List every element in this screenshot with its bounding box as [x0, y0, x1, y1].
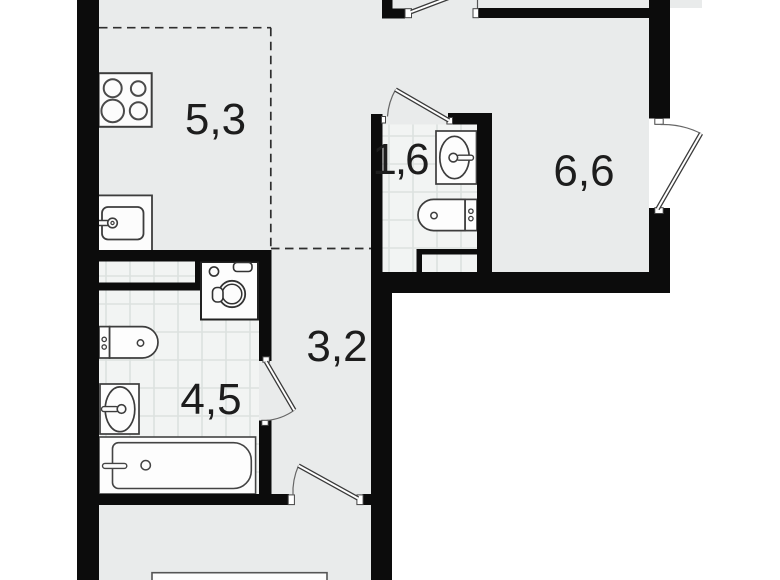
svg-text:1,6: 1,6	[372, 135, 428, 184]
svg-text:3,2: 3,2	[306, 322, 367, 371]
svg-text:6,6: 6,6	[553, 147, 614, 196]
svg-text:5,3: 5,3	[185, 95, 246, 144]
svg-text:4,5: 4,5	[180, 375, 241, 424]
